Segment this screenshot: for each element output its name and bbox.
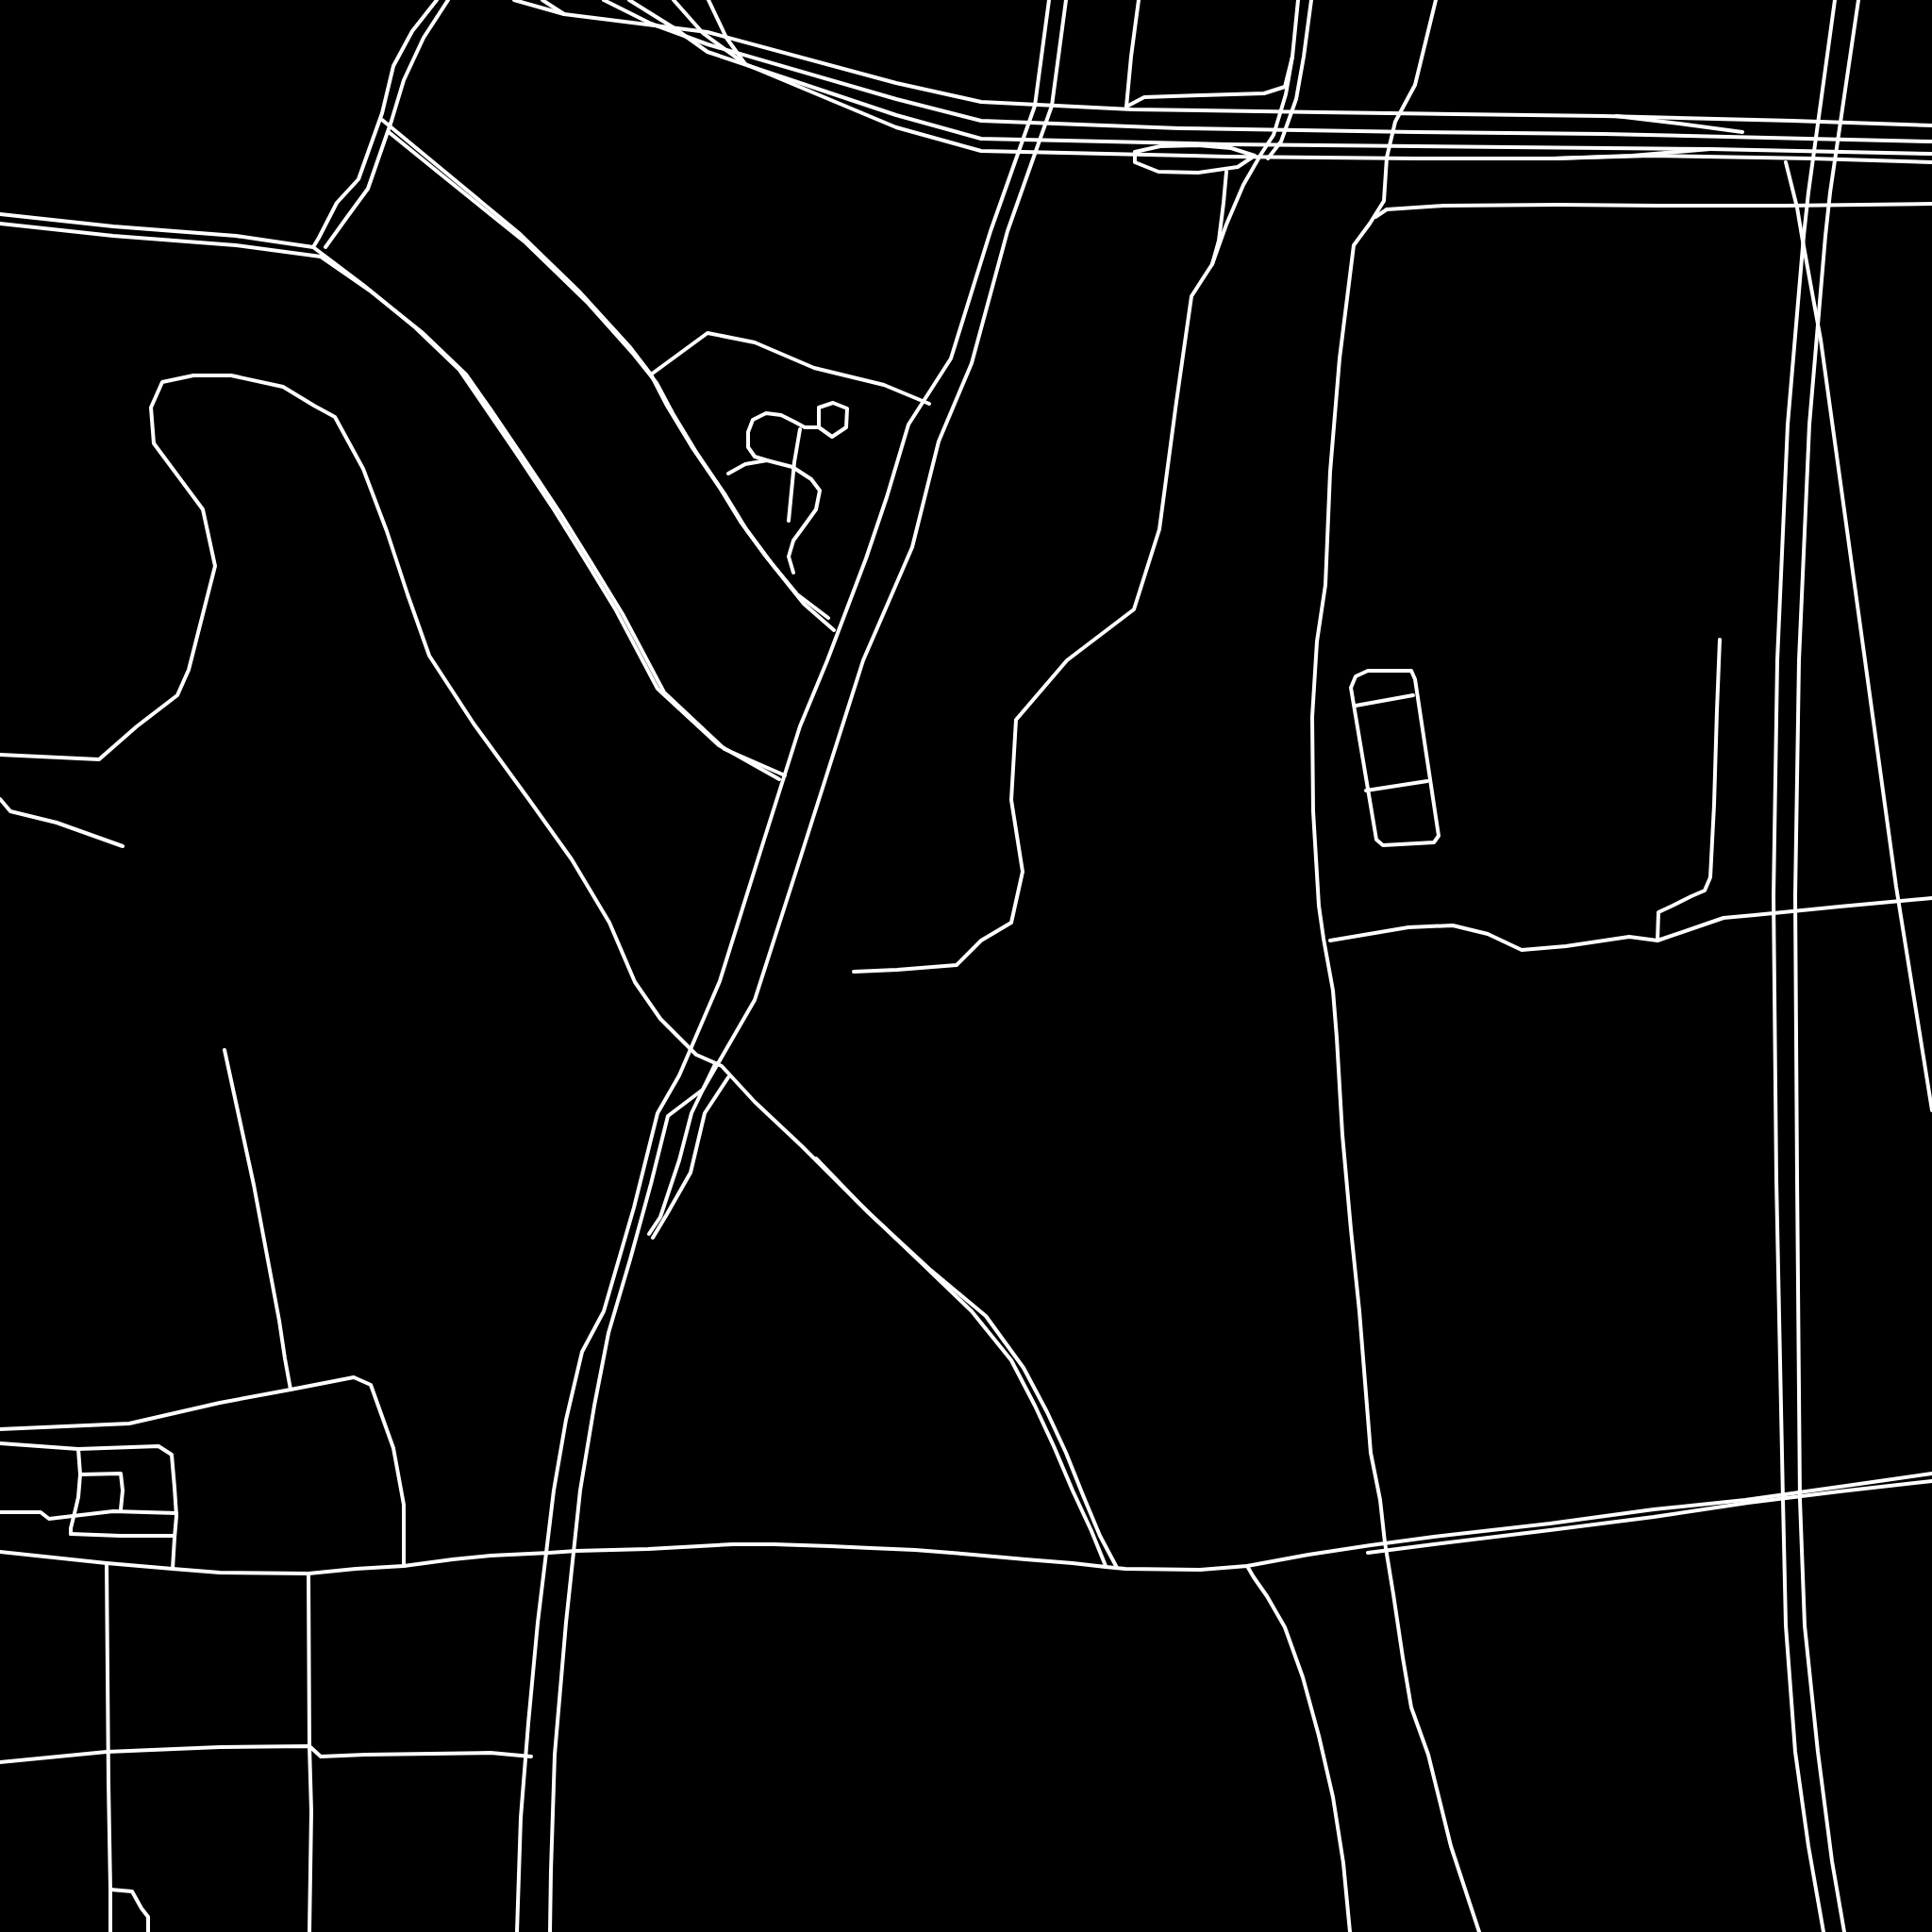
map-background <box>0 0 1932 1932</box>
road-southwest-block-inner-lane-c <box>71 1534 174 1536</box>
road-map-svg <box>0 0 1932 1932</box>
map-canvas[interactable] <box>0 0 1932 1932</box>
